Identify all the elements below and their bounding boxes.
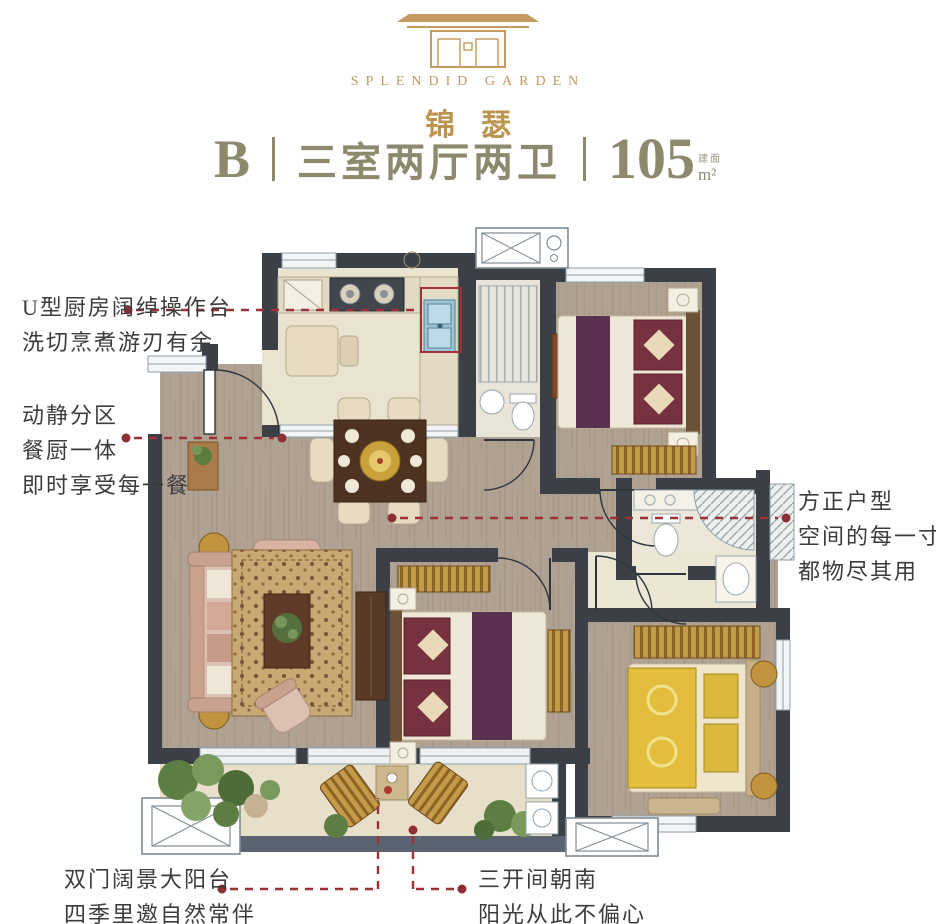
- note-line: 四季里邀自然常伴: [64, 897, 256, 924]
- window: [566, 268, 644, 282]
- dining-table: [334, 420, 426, 502]
- ac-platform-top: [476, 228, 568, 268]
- note-line: 都物尽其用: [798, 554, 936, 589]
- dresser: [612, 446, 696, 474]
- bedroom3: [628, 626, 777, 814]
- wardrobe: [548, 630, 570, 712]
- cutting-board: [284, 280, 322, 310]
- note-zoning: 动静分区 餐厨一体 即时享受每一餐: [22, 398, 190, 503]
- note-balcony: 双门阔景大阳台 四季里邀自然常伴: [64, 862, 256, 924]
- note-kitchen: U型厨房阔绰操作台 洗切烹煮游刃有余: [22, 290, 232, 360]
- bench: [648, 798, 720, 814]
- nightstand: [390, 742, 416, 764]
- balcony-plant: [324, 814, 348, 838]
- kitchen-sink: [424, 300, 455, 352]
- window: [776, 640, 790, 710]
- washbasin-outside: [716, 556, 756, 602]
- note-line: 空间的每一寸: [798, 519, 936, 554]
- note-square-layout: 方正户型 空间的每一寸 都物尽其用: [798, 484, 936, 589]
- bed-master: [390, 606, 546, 746]
- note-line: 洗切烹煮游刃有余: [22, 325, 232, 360]
- console-table: [188, 442, 218, 490]
- bed-north: [558, 310, 700, 434]
- note-line: 方正户型: [798, 484, 936, 519]
- note-line: 三开间朝南: [478, 862, 646, 897]
- note-line: 双门阔景大阳台: [64, 862, 256, 897]
- sofa: [188, 552, 238, 712]
- coffee-table: [264, 594, 310, 668]
- note-line: 阳光从此不偏心: [478, 897, 646, 924]
- note-line: 即时享受每一餐: [22, 468, 190, 503]
- dining-chair: [310, 438, 334, 482]
- stove: [330, 278, 404, 311]
- note-line: 餐厨一体: [22, 433, 190, 468]
- nightstand-round: [751, 773, 777, 799]
- note-line: 动静分区: [22, 398, 190, 433]
- bed-gold: [628, 660, 760, 796]
- toilet: [652, 514, 680, 556]
- dining-chair: [388, 398, 420, 422]
- nightstand: [668, 288, 698, 312]
- floorplan-page: SPLENDID GARDEN 锦瑟 B 三室两厅两卫 105 建面 m²: [0, 0, 936, 924]
- balcony-table: [376, 766, 408, 800]
- toilet: [510, 394, 536, 430]
- washbasin: [480, 390, 504, 414]
- shower-area: [479, 286, 537, 382]
- dining-chair: [424, 438, 448, 482]
- dining-chair: [338, 500, 370, 524]
- note-line: U型厨房阔绰操作台: [22, 290, 232, 325]
- wardrobe: [634, 626, 760, 658]
- dining-chair: [338, 398, 370, 422]
- note-south-facing: 三开间朝南 阳光从此不偏心: [478, 862, 646, 924]
- window: [200, 748, 530, 764]
- ac-ledge-east: [770, 484, 794, 560]
- vanity: [634, 490, 700, 510]
- ac-platform-south: [566, 818, 658, 856]
- nightstand: [390, 588, 416, 610]
- window: [282, 253, 336, 268]
- nightstand-round: [751, 661, 777, 687]
